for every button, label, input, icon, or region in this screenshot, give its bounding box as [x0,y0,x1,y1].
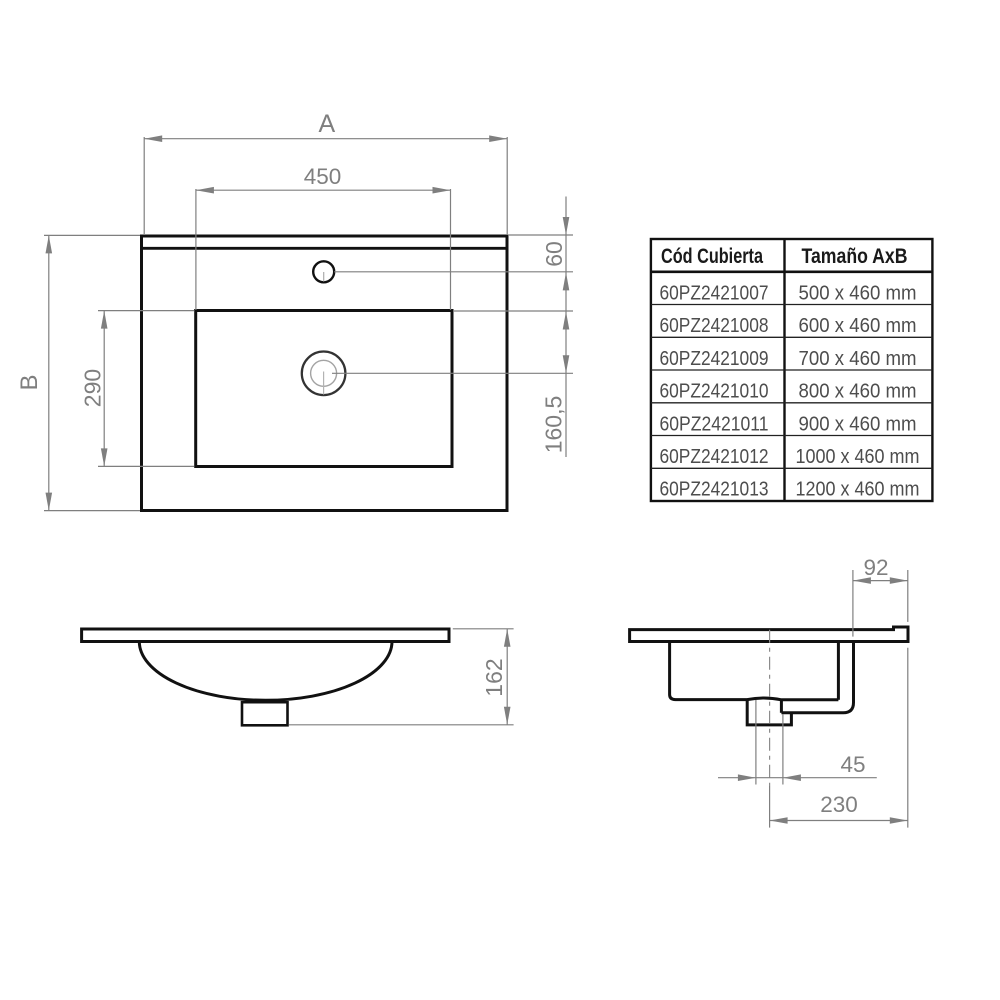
svg-text:160,5: 160,5 [541,396,567,454]
svg-text:Cód Cubierta: Cód Cubierta [661,245,763,268]
svg-text:A: A [318,110,335,138]
svg-text:230: 230 [820,792,858,817]
svg-text:162: 162 [481,658,507,696]
svg-text:60PZ2421010: 60PZ2421010 [660,380,769,403]
svg-text:500 x 460 mm: 500 x 460 mm [799,281,917,304]
svg-text:700 x 460 mm: 700 x 460 mm [799,347,917,370]
svg-text:Tamaño AxB: Tamaño AxB [802,245,908,268]
svg-text:290: 290 [80,369,106,407]
svg-text:900 x 460 mm: 900 x 460 mm [799,412,917,435]
svg-text:60PZ2421009: 60PZ2421009 [660,347,769,370]
svg-text:60PZ2421008: 60PZ2421008 [660,314,769,337]
svg-text:1000 x 460 mm: 1000 x 460 mm [796,445,920,468]
svg-text:60PZ2421012: 60PZ2421012 [660,445,769,468]
svg-text:450: 450 [304,164,342,189]
svg-text:60PZ2421013: 60PZ2421013 [660,478,769,501]
svg-text:1200 x 460 mm: 1200 x 460 mm [796,478,920,501]
svg-text:B: B [16,374,43,390]
svg-text:60PZ2421011: 60PZ2421011 [660,412,769,435]
svg-text:60: 60 [541,241,567,267]
svg-text:92: 92 [863,555,888,580]
svg-text:60PZ2421007: 60PZ2421007 [660,281,769,304]
svg-text:45: 45 [840,752,865,777]
svg-text:600 x 460 mm: 600 x 460 mm [799,314,917,337]
svg-text:800 x 460 mm: 800 x 460 mm [799,380,917,403]
